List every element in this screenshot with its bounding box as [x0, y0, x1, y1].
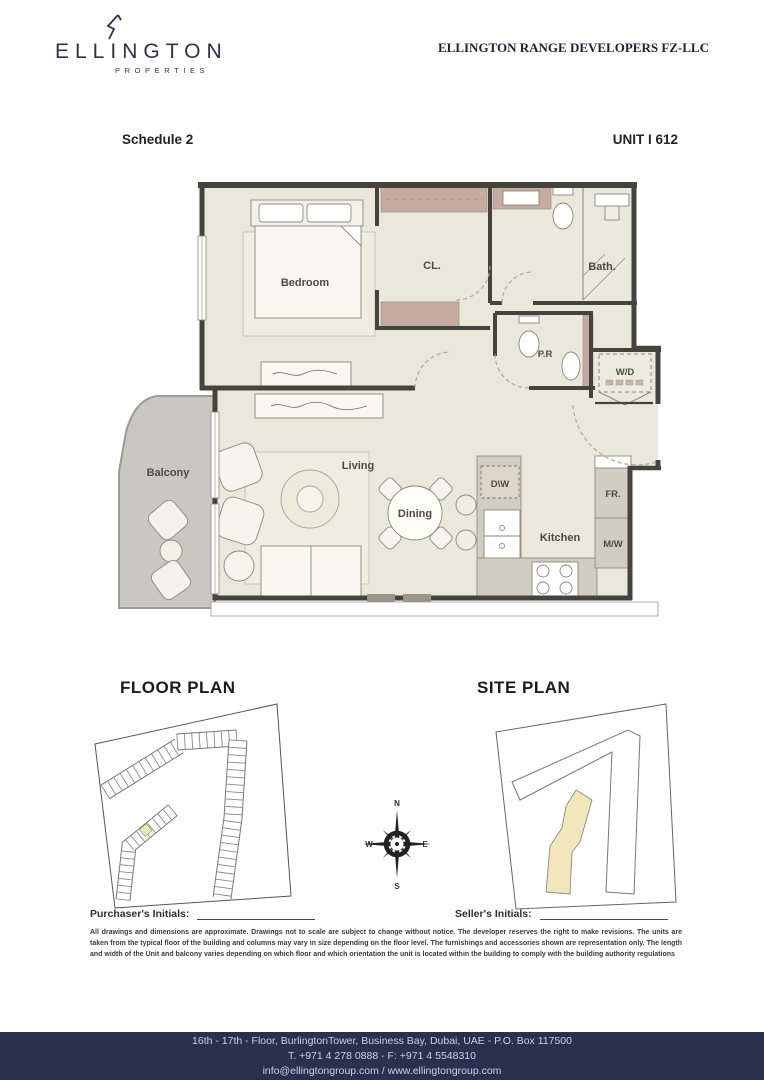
site-highlighted-building	[546, 790, 592, 894]
compass-rose: N S W E	[364, 794, 430, 894]
appliance-label-fridge: FR.	[605, 489, 620, 500]
site-plan-thumbnail	[468, 694, 683, 911]
wall-sill-2	[403, 594, 431, 602]
room-label-washer-dryer: W/D	[616, 367, 635, 378]
footer-bar: 16th - 17th - Floor, BurlingtonTower, Bu…	[0, 1032, 764, 1080]
wall-sill-1	[367, 594, 395, 602]
room-label-balcony: Balcony	[147, 467, 191, 479]
seller-initials-label: Seller's Initials:	[455, 908, 532, 920]
seller-initials-row: Seller's Initials:	[455, 908, 668, 920]
purchaser-initials-label: Purchaser's Initials:	[90, 908, 189, 920]
room-label-closet: CL.	[423, 260, 441, 272]
seller-initials-line[interactable]	[540, 909, 668, 920]
ellington-logo: ELLINGTON PROPERTIES	[55, 14, 228, 75]
disclaimer-text: All drawings and dimensions are approxim…	[90, 928, 682, 961]
room-label-bedroom: Bedroom	[281, 277, 330, 289]
floor-plan-title: FLOOR PLAN	[120, 678, 236, 698]
footer-address: 16th - 17th - Floor, BurlingtonTower, Bu…	[192, 1034, 572, 1048]
appliance-label-microwave: M/W	[603, 539, 623, 550]
ellington-logo-icon	[105, 14, 123, 40]
room-label-dining: Dining	[398, 508, 432, 520]
brand-subtitle: PROPERTIES	[55, 66, 228, 75]
floor-plan-thumbnail	[85, 698, 305, 910]
building-wings	[105, 738, 238, 900]
balcony-area: Balcony	[119, 396, 215, 608]
purchaser-initials-row: Purchaser's Initials:	[90, 908, 315, 920]
dining-furniture: Dining	[377, 476, 453, 550]
brand-name: ELLINGTON	[55, 40, 228, 64]
room-label-bath: Bath.	[588, 261, 616, 273]
footer-web: info@ellingtongroup.com / www.ellingtong…	[263, 1064, 502, 1078]
unit-number-label: UNIT I 612	[613, 132, 678, 147]
exterior-slab-band	[211, 602, 658, 616]
footer-phone: T. +971 4 278 0888 - F: +971 4 5548310	[288, 1049, 476, 1063]
purchaser-initials-line[interactable]	[197, 909, 315, 920]
unit-floorplan-drawing: Balcony CL. Bath. P.R	[105, 174, 665, 624]
compass-south-label: S	[394, 882, 400, 891]
compass-north-label: N	[394, 799, 400, 808]
schedule-label: Schedule 2	[122, 132, 193, 147]
room-label-powder: P.R	[538, 349, 553, 360]
room-label-kitchen: Kitchen	[540, 532, 581, 544]
developer-company-name: ELLINGTON RANGE DEVELOPERS FZ-LLC	[438, 40, 709, 56]
floorplan-document-page: { "header": { "brand": "ELLINGTON", "bra…	[0, 0, 764, 1080]
appliance-label-dishwasher: D\W	[491, 479, 510, 490]
room-label-living: Living	[342, 460, 374, 472]
